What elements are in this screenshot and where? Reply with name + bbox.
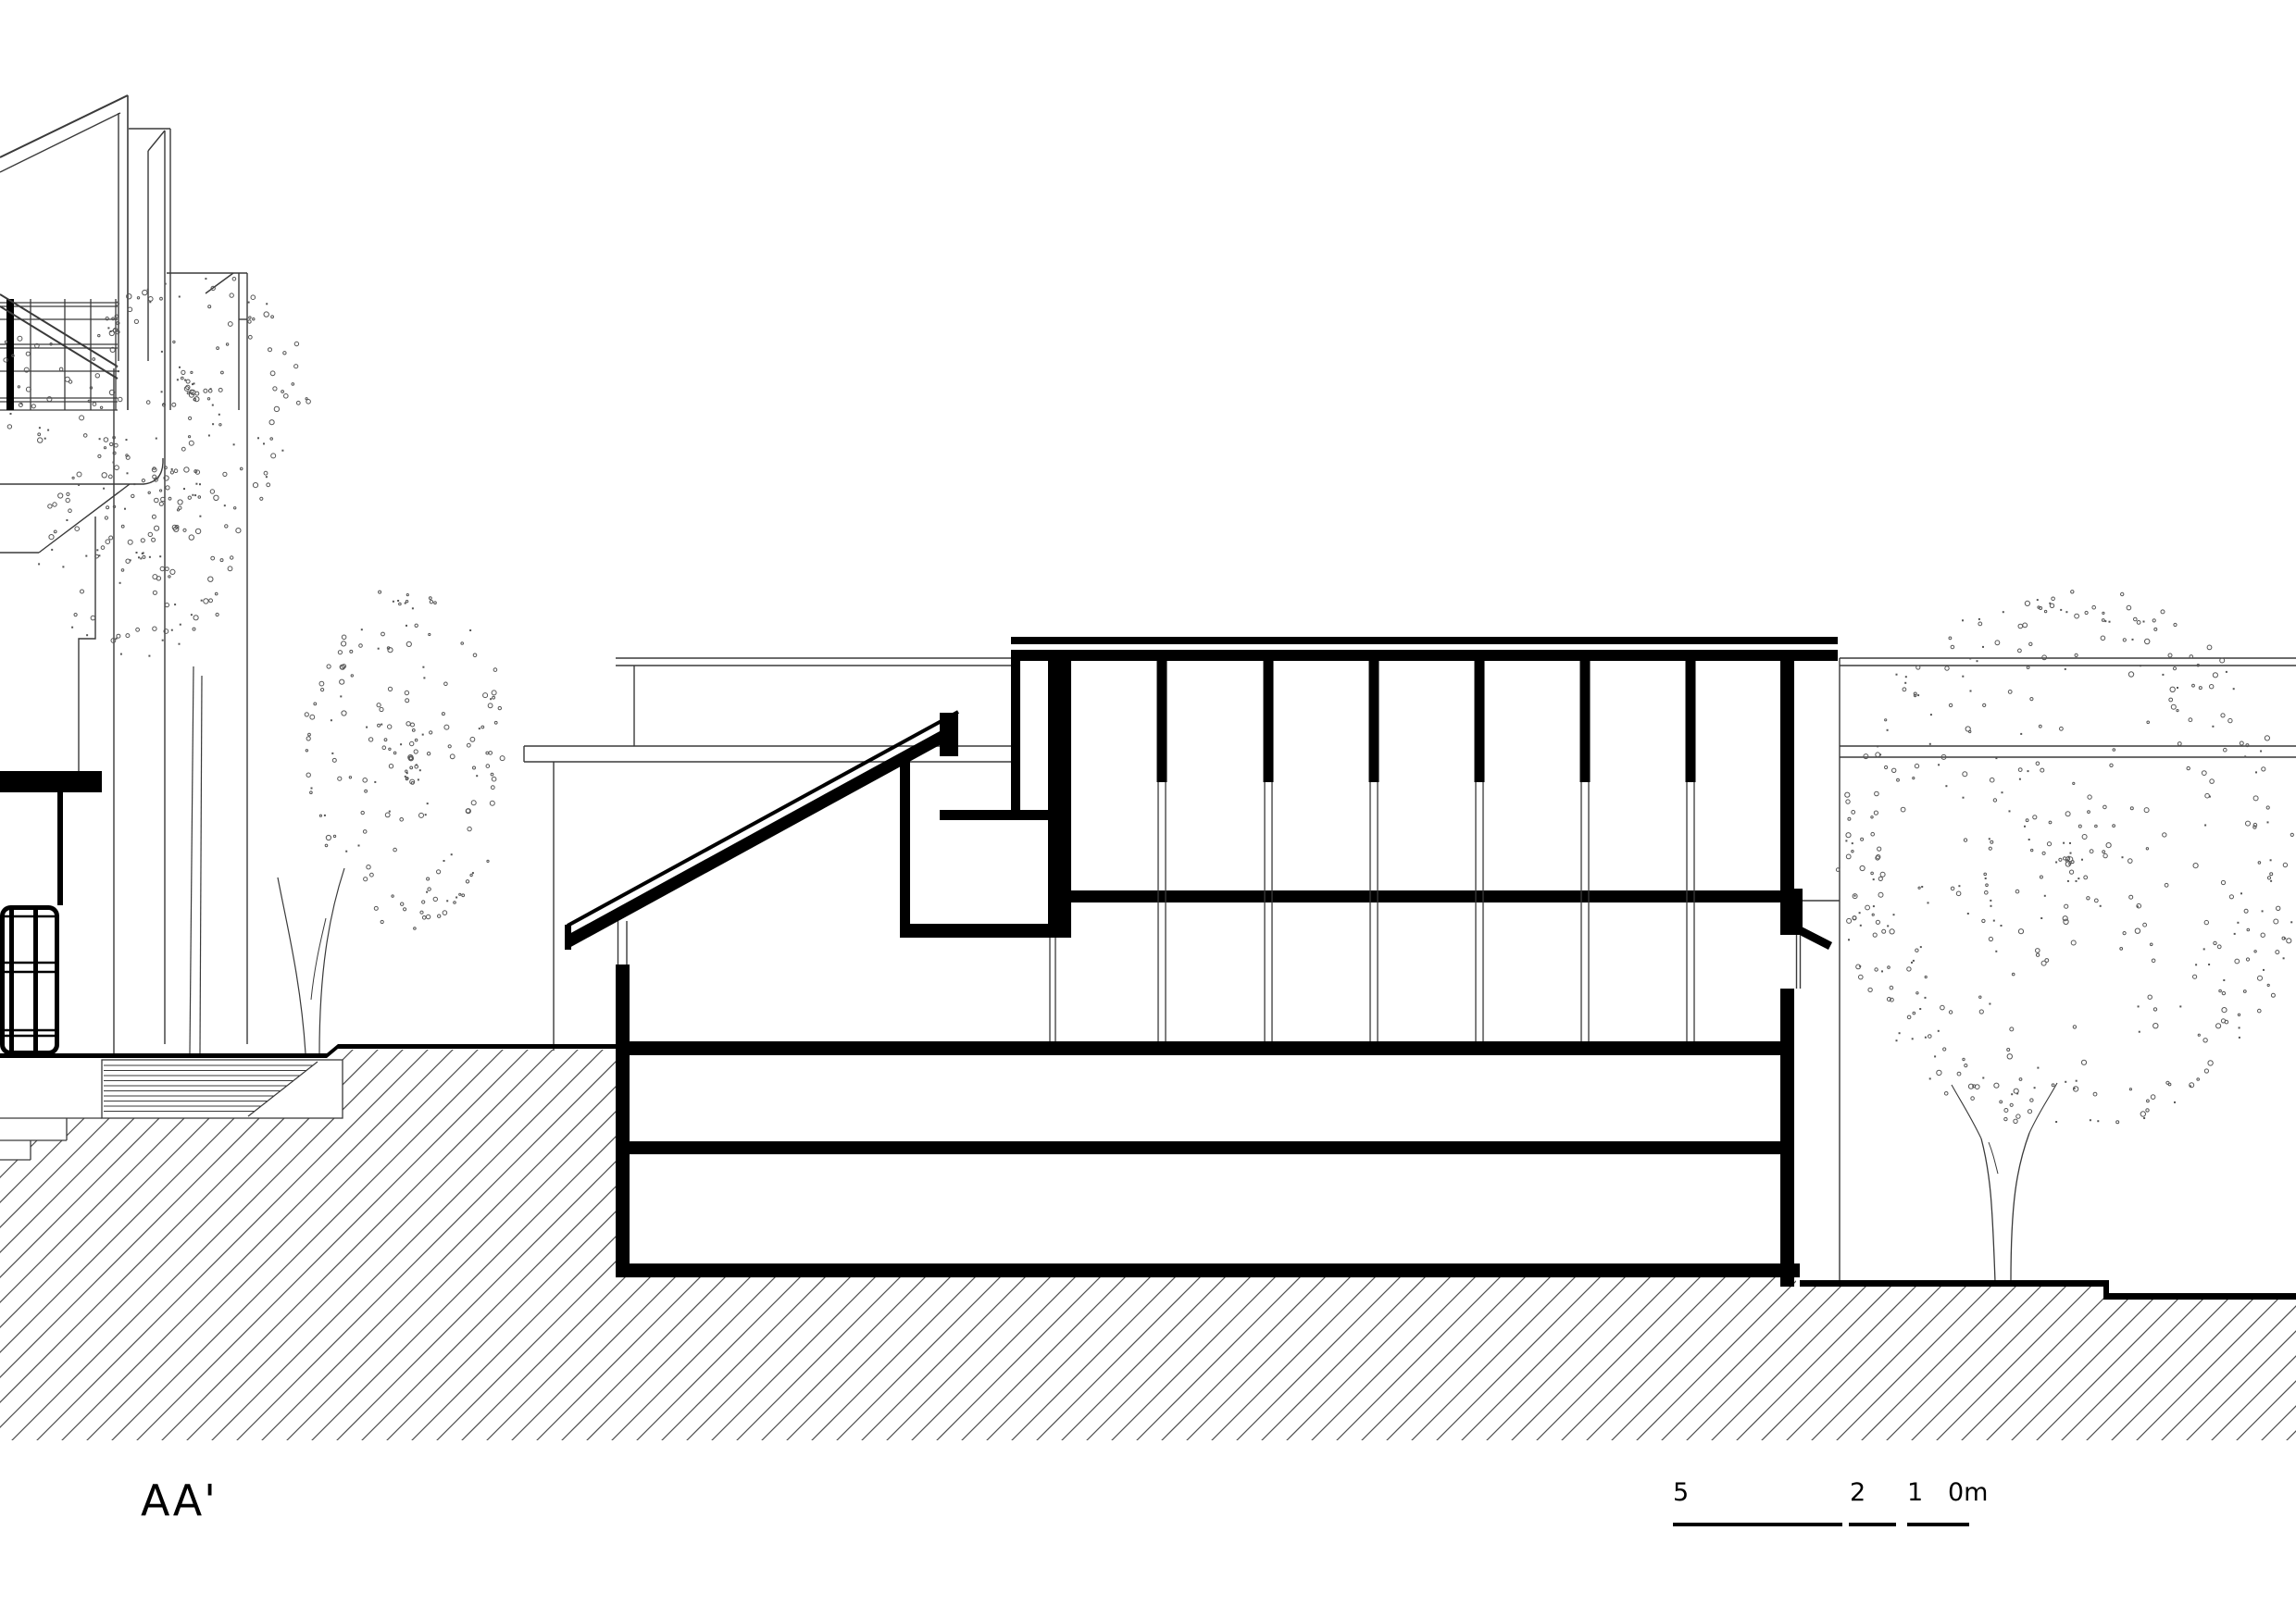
section-drawing: AA' 5 2 1 0m: [0, 0, 2296, 1618]
scale-label-5: 5: [1673, 1478, 1689, 1507]
scale-segment-5-2: [1673, 1523, 1842, 1526]
left-building-elevation: [0, 95, 247, 1053]
drawing-sheet: AA' 5 2 1 0m: [0, 0, 2296, 1618]
scale-bar: 5 2 1 0m: [1673, 1478, 1988, 1526]
scale-segment-2-1: [1849, 1523, 1896, 1526]
trees: [4, 278, 2294, 1283]
scale-label-0m: 0m: [1948, 1478, 1988, 1507]
scale-label-1: 1: [1907, 1478, 1923, 1507]
section-label: AA': [141, 1475, 218, 1525]
scale-label-2: 2: [1850, 1478, 1865, 1507]
main-building-section: [565, 637, 1838, 1287]
ground-hatch: [0, 1018, 2296, 1453]
site-details: [0, 1060, 343, 1160]
background-elevation-lines: [524, 658, 2296, 1280]
scale-segment-1-0: [1907, 1523, 1969, 1526]
